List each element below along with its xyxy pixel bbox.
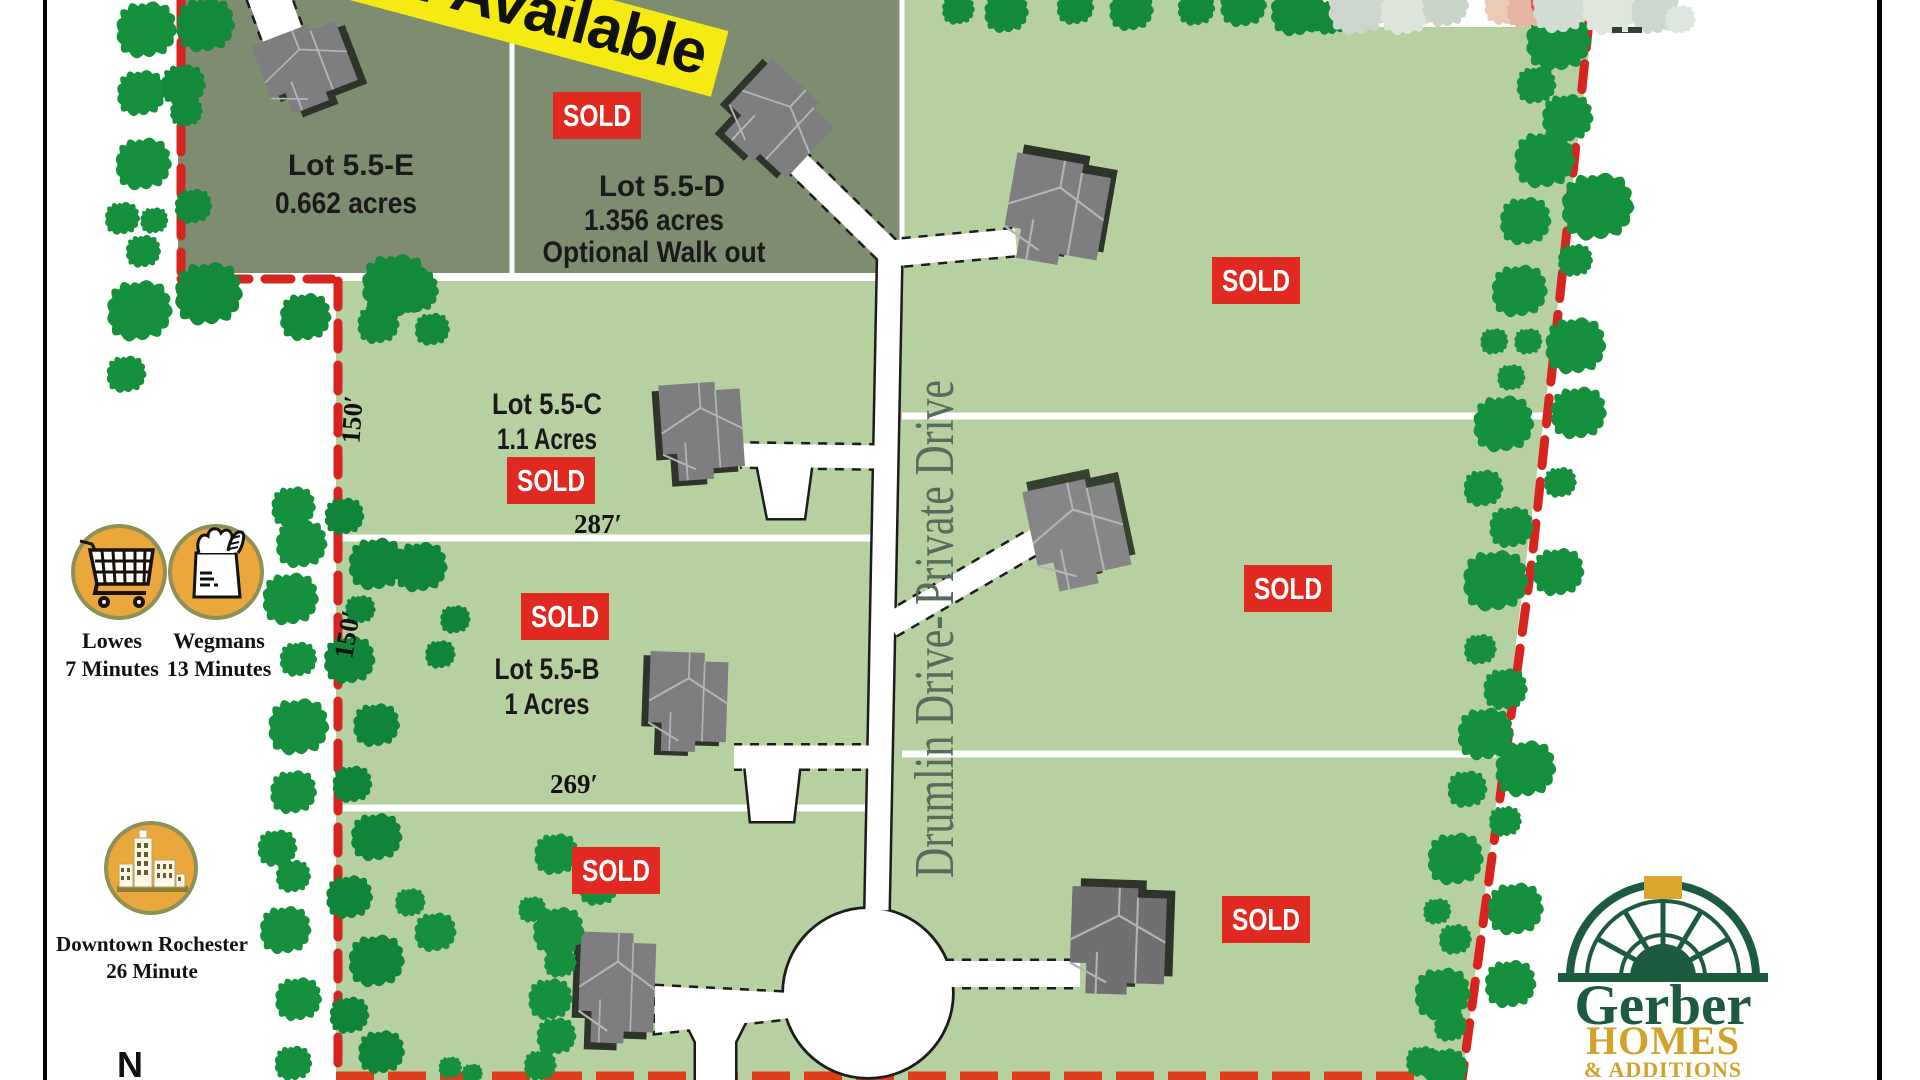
svg-text:& ADDITIONS: & ADDITIONS [1584,1057,1742,1080]
svg-text:Lot 5.5-C: Lot 5.5-C [492,388,602,421]
svg-text:1 Acres: 1 Acres [505,688,590,721]
svg-text:Lot 5.5-E: Lot 5.5-E [288,149,414,182]
svg-text:Lot 5.5-B: Lot 5.5-B [495,653,600,686]
svg-text:Optional Walk out: Optional Walk out [543,236,766,269]
svg-text:0.662 acres: 0.662 acres [275,187,417,220]
svg-text:SOLD: SOLD [582,853,650,888]
svg-text:N: N [117,1044,143,1080]
svg-text:26 Minute: 26 Minute [106,959,198,983]
svg-text:7 Minutes: 7 Minutes [65,656,159,681]
svg-text:SOLD: SOLD [563,98,631,133]
svg-text:150′: 150′ [335,394,368,444]
svg-text:Wegmans: Wegmans [173,628,265,653]
svg-text:SOLD: SOLD [517,463,585,498]
svg-text:SOLD: SOLD [531,599,599,634]
svg-text:287′: 287′ [574,509,622,539]
svg-text:Drumlin Drive- Private Drive: Drumlin Drive- Private Drive [904,380,966,878]
svg-text:13 Minutes: 13 Minutes [167,656,272,681]
svg-text:SOLD: SOLD [1232,902,1300,937]
svg-text:Lowes: Lowes [82,628,142,653]
svg-text:269′: 269′ [550,769,598,799]
svg-text:Lot 5.5-D: Lot 5.5-D [599,170,725,203]
svg-text:Downtown Rochester: Downtown Rochester [56,932,248,956]
svg-text:1.356 acres: 1.356 acres [584,204,724,237]
svg-text:1.1 Acres: 1.1 Acres [497,423,597,456]
svg-text:SOLD: SOLD [1222,263,1290,298]
svg-text:SOLD: SOLD [1254,571,1322,606]
